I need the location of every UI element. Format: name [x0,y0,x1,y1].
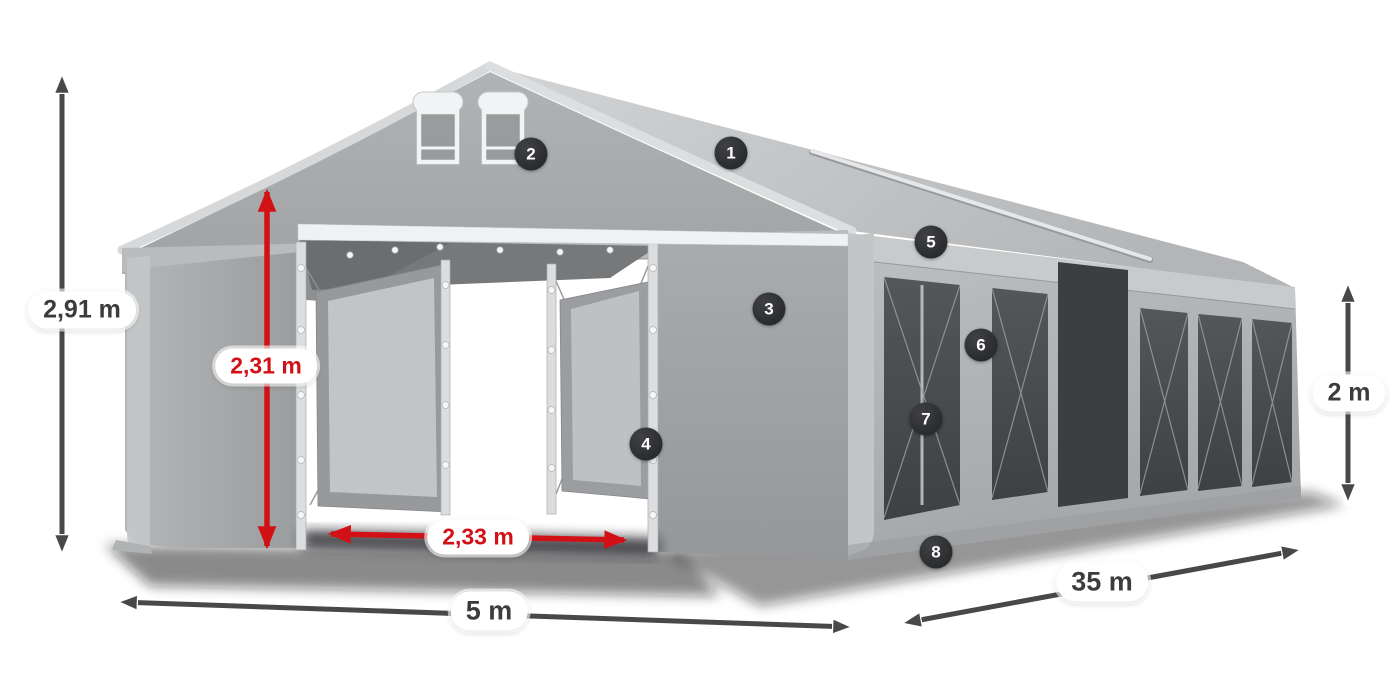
dimension-label-entrance-height: 2,31 m [215,349,317,384]
tent-illustration [0,0,1400,700]
tent-dimension-diagram: 2,91 m 2,31 m 2,33 m 5 m 35 m 2 m 1 2 3 … [0,0,1400,700]
gable-vent-left [413,92,463,162]
dimension-label-entrance-width: 2,33 m [427,520,529,555]
callout-badge-3[interactable]: 3 [753,293,786,326]
side-door-opening [1058,262,1128,507]
door-window-pane [571,291,641,486]
dimension-label-total-height: 2,91 m [28,292,136,329]
front-wall-left-panel [125,252,300,548]
vent-frame [419,112,457,162]
callout-badge-5[interactable]: 5 [915,226,948,259]
door-window-pane [328,278,437,497]
front-wall-right-panel [658,236,848,560]
dimension-label-front-width: 5 m [451,592,528,631]
vent-roll [478,92,528,112]
dimension-label-side-height: 2 m [1312,375,1385,412]
entrance-door-left [316,264,449,512]
callout-badge-2[interactable]: 2 [515,138,548,171]
callout-badge-6[interactable]: 6 [965,329,998,362]
side-front-corner-wrap [848,233,874,556]
callout-badge-7[interactable]: 7 [910,403,943,436]
callout-badge-1[interactable]: 1 [715,137,748,170]
entrance-opening [296,240,658,556]
callout-badge-8[interactable]: 8 [920,536,953,569]
callout-badge-4[interactable]: 4 [630,428,663,461]
dimension-label-side-length: 35 m [1056,563,1148,602]
vent-roll [413,92,463,112]
entrance-door-right [560,282,651,499]
